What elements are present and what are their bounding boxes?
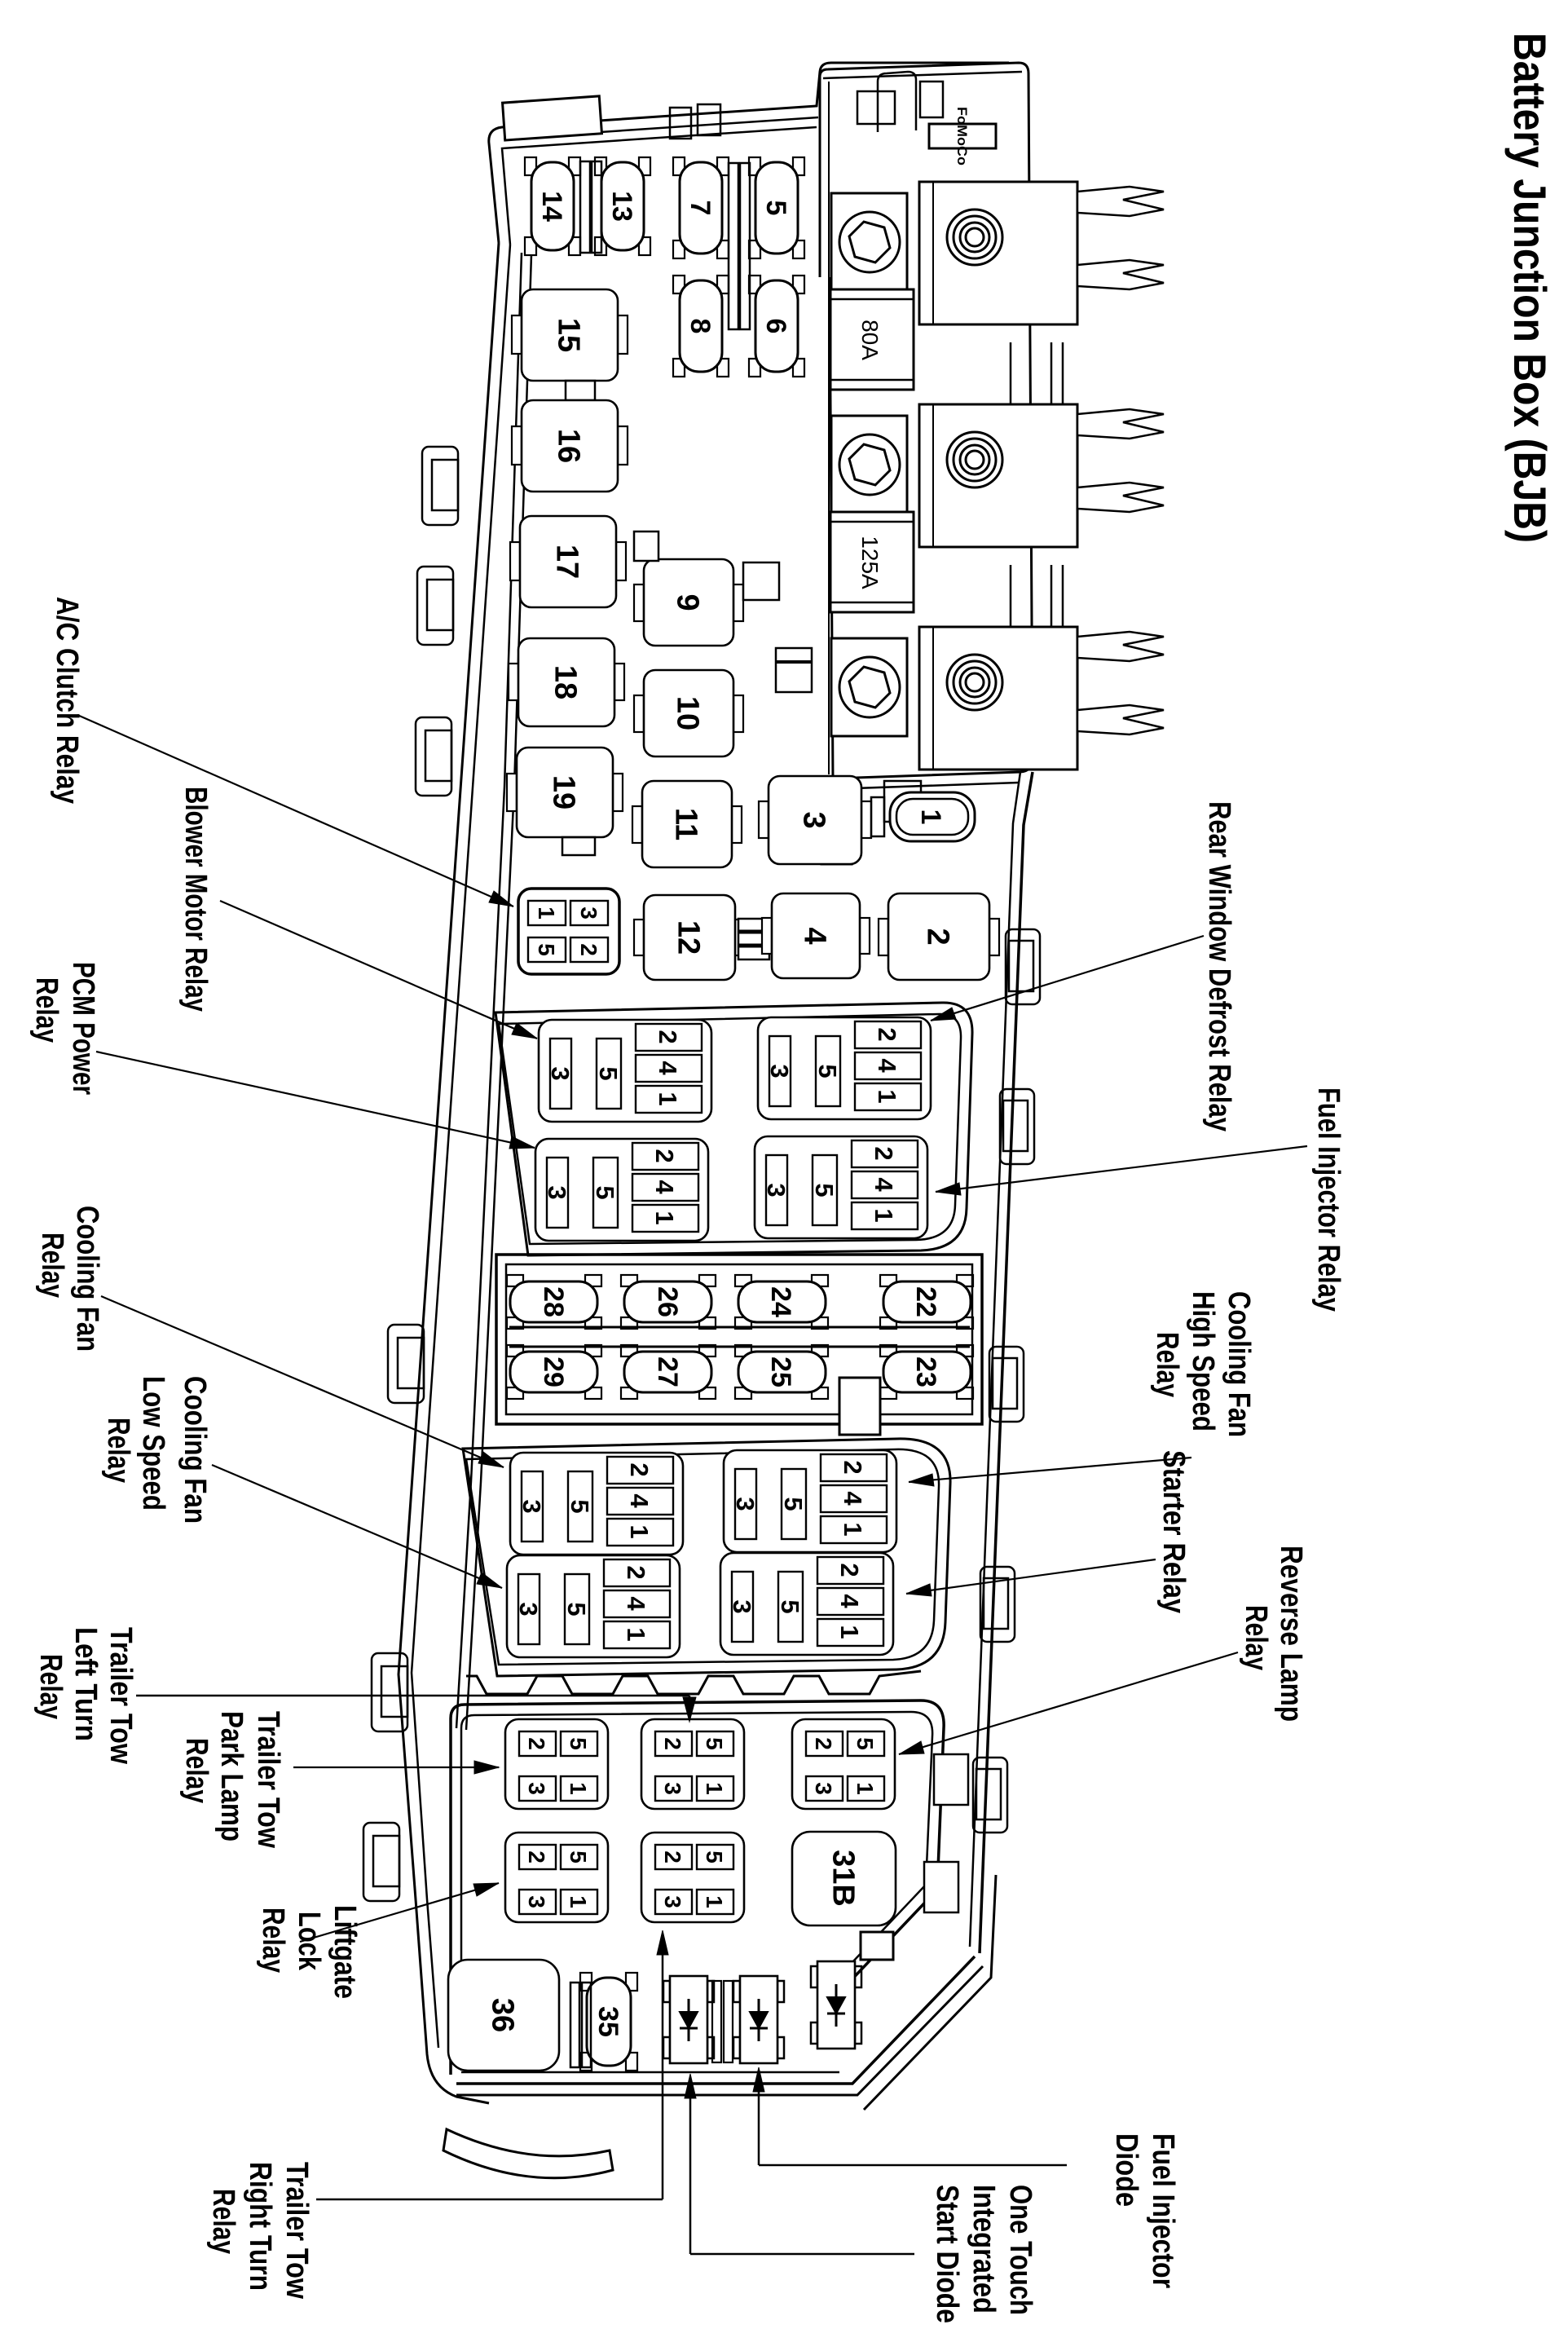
svg-text:Integrated: Integrated <box>967 2185 1001 2314</box>
svg-text:26: 26 <box>652 1286 683 1317</box>
svg-text:125A: 125A <box>857 536 883 589</box>
svg-text:2: 2 <box>650 1149 679 1162</box>
svg-text:Rear Window Defrost Relay: Rear Window Defrost Relay <box>1202 801 1236 1131</box>
svg-text:Start Diode: Start Diode <box>930 2185 964 2323</box>
svg-text:12: 12 <box>671 920 705 955</box>
svg-text:4: 4 <box>870 1177 898 1192</box>
svg-text:3: 3 <box>543 1185 571 1199</box>
svg-text:5: 5 <box>566 1499 594 1513</box>
svg-text:5: 5 <box>702 1737 727 1750</box>
svg-text:5: 5 <box>594 1066 623 1080</box>
svg-text:Relay: Relay <box>1150 1332 1184 1397</box>
svg-text:3: 3 <box>514 1602 543 1616</box>
svg-text:Relay: Relay <box>256 1908 290 1973</box>
svg-text:5: 5 <box>534 943 559 956</box>
svg-text:5: 5 <box>813 1064 842 1078</box>
svg-text:6: 6 <box>760 319 791 334</box>
svg-text:3: 3 <box>731 1497 760 1511</box>
svg-text:7: 7 <box>685 201 716 216</box>
svg-text:29: 29 <box>538 1356 569 1387</box>
svg-text:Fuel Injector: Fuel Injector <box>1146 2133 1180 2288</box>
svg-text:5: 5 <box>562 1602 591 1616</box>
svg-text:High Speed: High Speed <box>1186 1291 1220 1431</box>
svg-text:3: 3 <box>546 1066 575 1080</box>
svg-text:18: 18 <box>548 665 582 699</box>
svg-text:Relay: Relay <box>33 1654 68 1719</box>
svg-text:Relay: Relay <box>29 977 64 1043</box>
svg-text:2: 2 <box>870 1146 898 1160</box>
svg-text:1: 1 <box>835 1625 864 1639</box>
svg-text:22: 22 <box>910 1286 941 1317</box>
svg-text:5: 5 <box>810 1183 839 1197</box>
svg-text:5: 5 <box>852 1737 878 1750</box>
svg-text:Blower Motor Relay: Blower Motor Relay <box>178 787 213 1012</box>
svg-text:1: 1 <box>839 1522 867 1536</box>
svg-text:3: 3 <box>762 1183 791 1197</box>
svg-text:28: 28 <box>538 1286 569 1317</box>
svg-text:2: 2 <box>873 1027 901 1041</box>
svg-text:2: 2 <box>920 928 954 945</box>
svg-text:Relay: Relay <box>179 1738 214 1803</box>
svg-text:8: 8 <box>685 319 716 334</box>
svg-text:3: 3 <box>796 811 830 828</box>
svg-text:25: 25 <box>765 1356 796 1387</box>
svg-text:2: 2 <box>625 1462 654 1476</box>
svg-text:1: 1 <box>873 1089 901 1103</box>
svg-text:80A: 80A <box>857 320 883 360</box>
svg-text:3: 3 <box>518 1499 546 1513</box>
svg-text:1: 1 <box>534 906 559 920</box>
svg-text:4: 4 <box>622 1596 650 1611</box>
svg-text:3: 3 <box>660 1895 685 1908</box>
svg-text:Relay: Relay <box>206 2189 240 2254</box>
svg-text:Diode: Diode <box>1109 2133 1143 2207</box>
svg-text:Right Turn: Right Turn <box>243 2162 277 2291</box>
svg-text:Trailer Tow: Trailer Tow <box>104 1627 138 1764</box>
svg-text:2: 2 <box>660 1737 685 1750</box>
svg-text:2: 2 <box>835 1563 864 1577</box>
svg-text:1: 1 <box>625 1524 654 1538</box>
svg-text:1: 1 <box>702 1782 727 1795</box>
svg-text:2: 2 <box>654 1030 682 1043</box>
svg-text:4: 4 <box>873 1058 901 1073</box>
svg-text:3: 3 <box>524 1782 549 1795</box>
svg-text:1: 1 <box>566 1782 591 1795</box>
svg-text:5: 5 <box>566 1850 591 1864</box>
svg-text:4: 4 <box>835 1594 864 1608</box>
svg-text:1: 1 <box>702 1895 727 1908</box>
svg-text:4: 4 <box>839 1491 867 1506</box>
svg-text:2: 2 <box>524 1850 549 1864</box>
svg-text:1: 1 <box>622 1627 650 1641</box>
svg-text:3: 3 <box>524 1895 549 1908</box>
svg-text:Low Speed: Low Speed <box>136 1376 170 1511</box>
svg-text:36: 36 <box>485 1998 519 2032</box>
svg-text:35: 35 <box>592 2006 623 2037</box>
svg-text:Reverse Lamp: Reverse Lamp <box>1274 1546 1308 1722</box>
svg-text:1: 1 <box>654 1092 682 1105</box>
svg-text:Left Turn: Left Turn <box>68 1627 103 1741</box>
svg-text:4: 4 <box>797 927 831 944</box>
svg-text:Trailer Tow: Trailer Tow <box>280 2162 314 2299</box>
svg-text:5: 5 <box>702 1850 727 1864</box>
svg-text:FoMoCo: FoMoCo <box>954 107 970 165</box>
svg-text:Relay: Relay <box>1239 1605 1273 1670</box>
svg-text:17: 17 <box>549 545 584 579</box>
svg-text:Park Lamp: Park Lamp <box>214 1711 249 1842</box>
svg-text:2: 2 <box>622 1565 650 1579</box>
svg-text:Relay: Relay <box>101 1418 135 1483</box>
svg-text:3: 3 <box>811 1782 836 1795</box>
svg-text:4: 4 <box>654 1061 682 1075</box>
svg-text:Relay: Relay <box>35 1233 69 1298</box>
svg-text:2: 2 <box>660 1850 685 1864</box>
svg-text:Fuel Injector Relay: Fuel Injector Relay <box>1311 1087 1346 1312</box>
svg-text:One Touch: One Touch <box>1003 2185 1037 2315</box>
svg-text:31B: 31B <box>826 1850 860 1907</box>
svg-text:5: 5 <box>760 201 791 216</box>
svg-text:19: 19 <box>546 775 580 809</box>
svg-text:4: 4 <box>625 1493 654 1508</box>
svg-text:1: 1 <box>650 1211 679 1224</box>
svg-text:14: 14 <box>536 191 567 222</box>
svg-text:Cooling Fan: Cooling Fan <box>70 1206 104 1352</box>
svg-text:11: 11 <box>668 808 703 840</box>
svg-text:24: 24 <box>765 1286 796 1317</box>
svg-text:3: 3 <box>660 1782 685 1795</box>
svg-text:27: 27 <box>652 1356 683 1387</box>
svg-text:3: 3 <box>728 1599 756 1613</box>
svg-text:2: 2 <box>811 1737 836 1750</box>
svg-text:1: 1 <box>870 1208 898 1222</box>
svg-text:4: 4 <box>650 1180 679 1194</box>
svg-text:15: 15 <box>551 318 585 352</box>
svg-text:Cooling Fan: Cooling Fan <box>178 1376 212 1524</box>
svg-text:Cooling Fan: Cooling Fan <box>1222 1291 1256 1437</box>
svg-text:1: 1 <box>566 1895 591 1908</box>
svg-text:1: 1 <box>852 1782 878 1795</box>
svg-text:Starter Relay: Starter Relay <box>1156 1450 1191 1613</box>
svg-text:Lock: Lock <box>292 1912 326 1971</box>
svg-text:PCM Power: PCM Power <box>66 962 100 1095</box>
svg-text:3: 3 <box>765 1064 794 1078</box>
svg-text:9: 9 <box>670 593 704 611</box>
svg-text:1: 1 <box>915 809 946 825</box>
svg-text:A/C Clutch Relay: A/C Clutch Relay <box>50 597 84 804</box>
svg-text:16: 16 <box>551 429 585 463</box>
svg-text:2: 2 <box>524 1737 549 1750</box>
svg-text:3: 3 <box>576 906 601 920</box>
svg-text:23: 23 <box>910 1356 941 1387</box>
svg-text:Liftgate: Liftgate <box>328 1905 362 1999</box>
svg-text:10: 10 <box>670 696 704 730</box>
svg-text:5: 5 <box>566 1737 591 1750</box>
svg-text:Battery Junction Box (BJB): Battery Junction Box (BJB) <box>1504 33 1556 543</box>
svg-text:2: 2 <box>576 943 601 956</box>
svg-text:13: 13 <box>606 191 637 222</box>
svg-text:2: 2 <box>839 1460 867 1474</box>
svg-text:5: 5 <box>776 1599 804 1613</box>
svg-text:5: 5 <box>591 1185 619 1199</box>
svg-text:Trailer Tow: Trailer Tow <box>251 1711 285 1848</box>
svg-text:5: 5 <box>779 1497 808 1511</box>
